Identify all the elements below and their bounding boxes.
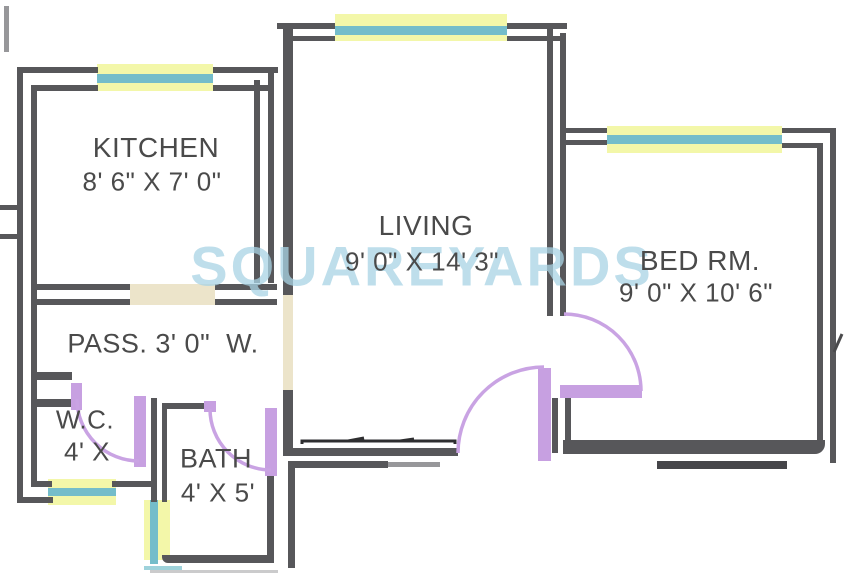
kitchen-dims: 8' 6" X 7' 0" [83,167,222,198]
bath-dims: 4' X 5' [181,478,255,509]
kitchen-label: KITCHEN [93,132,219,164]
bedroom-label: BED RM. [640,245,760,277]
bedroom-door-swing [564,314,641,391]
living-label: LIVING [379,210,474,242]
wc-label: W.C. [56,405,114,436]
entrance-door-swing [458,367,544,453]
bath-label: BATH [180,444,252,475]
passage-label: PASS. 3' 0" W. [67,329,258,360]
wc-dims: 4' X [64,437,110,468]
living-threshold-line [302,441,455,444]
living-dims: 9' 0" X 14' 3" [345,247,499,278]
dimension-arrow-mark [834,334,842,352]
floor-plan: SQUAREYARDS KITCHEN 8' 6" X 7' 0" LIVING… [0,0,844,575]
threshold-tick [400,439,414,441]
bedroom-dims: 9' 0" X 10' 6" [619,278,773,309]
